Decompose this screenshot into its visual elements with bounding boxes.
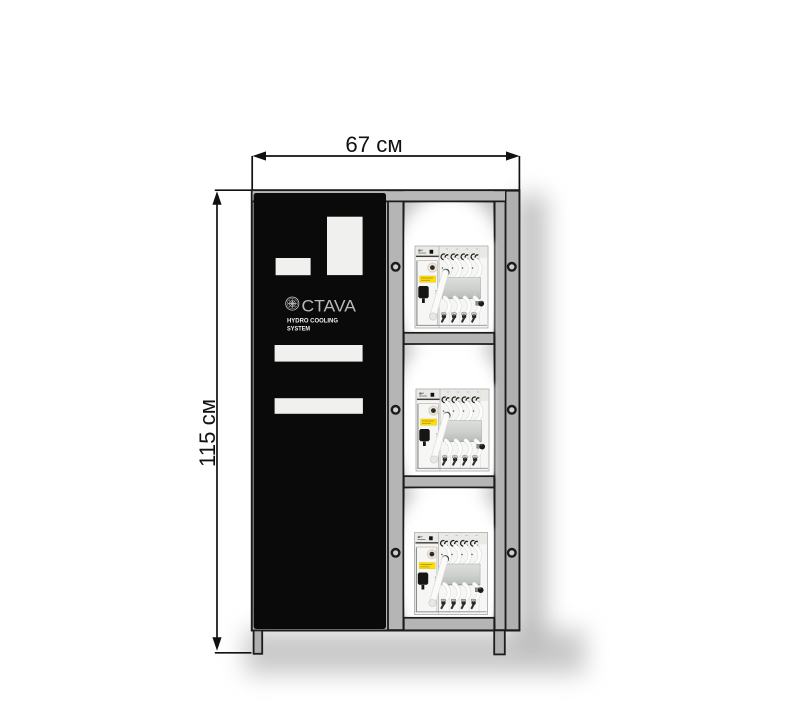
svg-text:HYDRO COOLING: HYDRO COOLING [287,318,338,325]
svg-text:67 см: 67 см [345,132,402,157]
svg-text:CTAVA: CTAVA [302,297,357,315]
svg-text:115 см: 115 см [195,399,220,467]
svg-text:SYSTEM: SYSTEM [287,325,310,332]
